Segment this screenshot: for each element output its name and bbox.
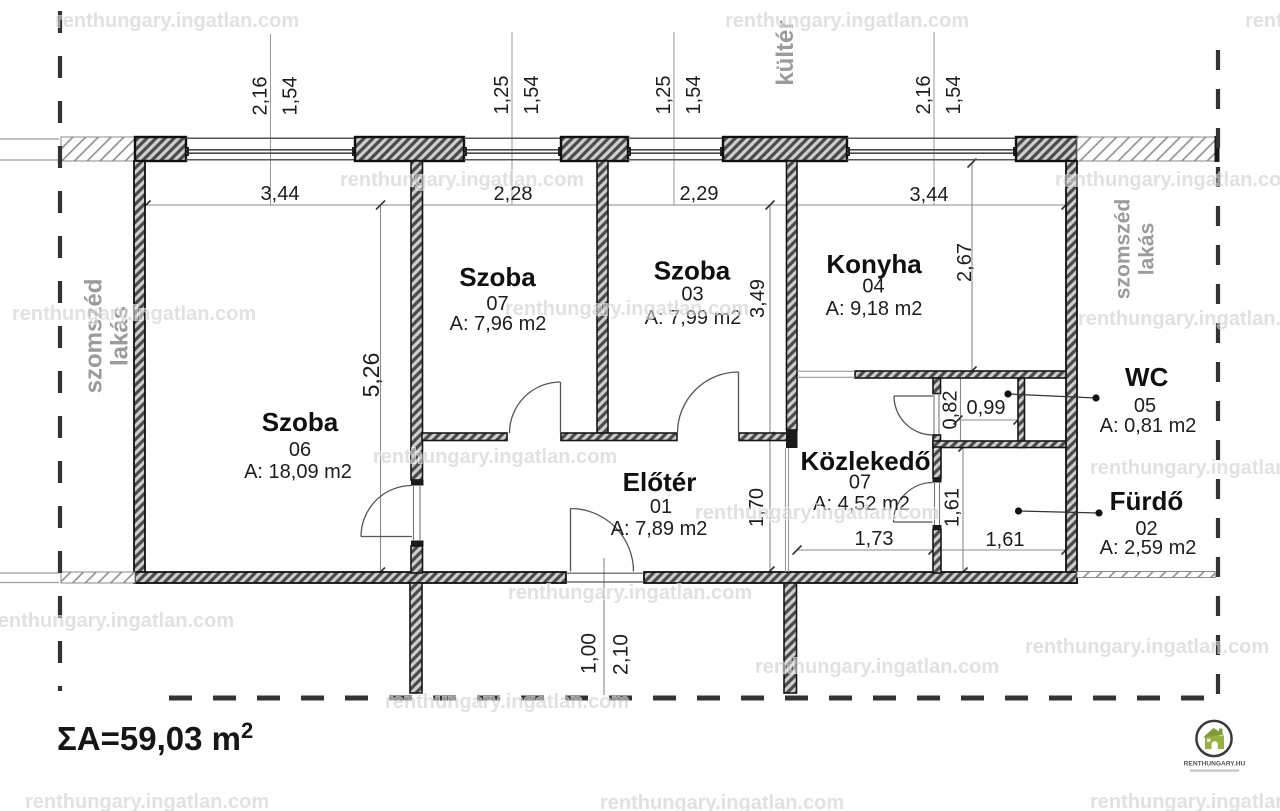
- svg-text:renthungary.ingatlan.com: renthungary.ingatlan.com: [1245, 10, 1280, 32]
- svg-text:renthungary.ingatlan.com: renthungary.ingatlan.com: [55, 10, 299, 32]
- svg-text:renthungary.ingatlan.com: renthungary.ingatlan.com: [25, 791, 269, 811]
- svg-text:5,26: 5,26: [358, 353, 384, 398]
- svg-text:szomszéd: szomszéd: [1111, 199, 1134, 299]
- svg-text:renthungary.ingatlan.com: renthungary.ingatlan.com: [1025, 636, 1269, 658]
- svg-text:2,16: 2,16: [250, 77, 272, 116]
- svg-text:06: 06: [289, 439, 311, 461]
- svg-text:Szoba: Szoba: [459, 262, 536, 292]
- svg-text:renthungary.ingatlan.com: renthungary.ingatlan.com: [1090, 791, 1280, 811]
- svg-text:1,61: 1,61: [942, 488, 964, 527]
- svg-text:renthungary.ingatlan.com: renthungary.ingatlan.com: [600, 792, 844, 811]
- svg-text:A: 2,59 m2: A: 2,59 m2: [1100, 537, 1197, 559]
- svg-text:renthungary.ingatlan.com: renthungary.ingatlan.com: [505, 298, 749, 320]
- svg-text:2,10: 2,10: [609, 634, 632, 675]
- svg-text:ΣA=59,03 m2: ΣA=59,03 m2: [57, 718, 253, 757]
- svg-text:renthungary.ingatlan.com: renthungary.ingatlan.com: [1055, 169, 1280, 191]
- svg-text:05: 05: [1134, 395, 1156, 417]
- svg-text:01: 01: [650, 496, 672, 518]
- svg-text:renthungary.ingatlan.com: renthungary.ingatlan.com: [508, 582, 752, 604]
- svg-text:2,16: 2,16: [913, 76, 935, 115]
- svg-text:renthungary.ingatlan.com: renthungary.ingatlan.com: [373, 446, 617, 468]
- svg-text:A: 7,89 m2: A: 7,89 m2: [611, 518, 708, 540]
- svg-text:Konyha: Konyha: [826, 249, 922, 279]
- svg-text:renthungary.ingatlan.com: renthungary.ingatlan.com: [695, 502, 939, 524]
- svg-text:1,54: 1,54: [521, 76, 543, 115]
- svg-text:0,99: 0,99: [967, 397, 1006, 419]
- svg-text:RENTHUNGARY.HU: RENTHUNGARY.HU: [1184, 761, 1246, 768]
- svg-text:1,54: 1,54: [280, 77, 302, 116]
- svg-text:renthungary.ingatlan.com: renthungary.ingatlan.com: [1078, 308, 1280, 330]
- svg-text:1,61: 1,61: [986, 529, 1025, 551]
- svg-text:Szoba: Szoba: [262, 407, 339, 437]
- svg-text:lakás: lakás: [1135, 223, 1158, 276]
- svg-text:Szoba: Szoba: [654, 256, 731, 286]
- svg-text:renthungary.ingatlan.com: renthungary.ingatlan.com: [340, 169, 584, 191]
- svg-text:3,44: 3,44: [261, 183, 300, 205]
- svg-text:renthungary.ingatlan.com: renthungary.ingatlan.com: [1090, 457, 1280, 479]
- svg-text:renthungary.ingatlan.com: renthungary.ingatlan.com: [12, 303, 256, 325]
- svg-text:1,25: 1,25: [653, 76, 675, 115]
- svg-text:3,44: 3,44: [910, 184, 949, 206]
- svg-text:1,73: 1,73: [855, 528, 894, 550]
- svg-text:szomszéd: szomszéd: [80, 279, 107, 394]
- svg-text:A: 18,09 m2: A: 18,09 m2: [244, 461, 352, 483]
- svg-text:renthungary.ingatlan.com: renthungary.ingatlan.com: [725, 10, 969, 32]
- svg-text:1,25: 1,25: [491, 76, 513, 115]
- svg-text:A: 0,81 m2: A: 0,81 m2: [1100, 415, 1197, 437]
- svg-text:Fürdő: Fürdő: [1110, 486, 1184, 516]
- svg-text:1,54: 1,54: [683, 76, 705, 115]
- svg-text:0,82: 0,82: [940, 391, 962, 430]
- svg-text:2,67: 2,67: [954, 243, 976, 282]
- svg-text:Előtér: Előtér: [623, 467, 697, 497]
- svg-text:1,00: 1,00: [577, 633, 600, 674]
- svg-text:04: 04: [862, 276, 884, 298]
- svg-text:renthungary.ingatlan.com: renthungary.ingatlan.com: [0, 610, 234, 632]
- svg-text:WC: WC: [1125, 362, 1169, 392]
- svg-text:renthungary.ingatlan.com: renthungary.ingatlan.com: [385, 691, 629, 713]
- svg-text:07: 07: [849, 472, 871, 494]
- svg-text:1,54: 1,54: [943, 76, 965, 115]
- svg-text:3,49: 3,49: [747, 279, 769, 318]
- svg-text:A: 9,18 m2: A: 9,18 m2: [826, 298, 923, 320]
- svg-text:renthungary.ingatlan.com: renthungary.ingatlan.com: [755, 656, 999, 678]
- svg-text:2,29: 2,29: [680, 183, 719, 205]
